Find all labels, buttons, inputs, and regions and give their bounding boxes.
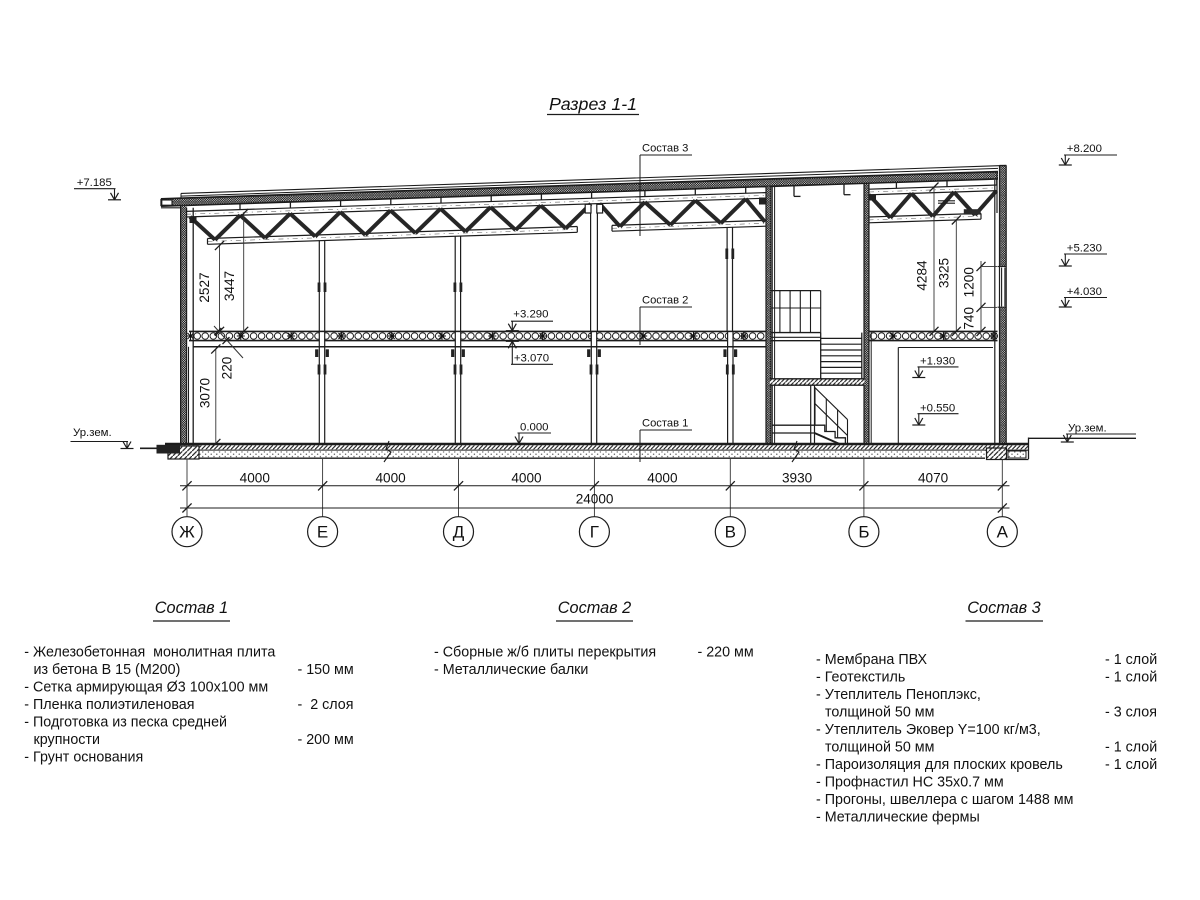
svg-text:+8.200: +8.200: [1067, 143, 1102, 155]
svg-text:- Пароизоляция для плоских кро: - Пароизоляция для плоских кровель: [816, 757, 1063, 773]
svg-text:3930: 3930: [782, 471, 813, 486]
svg-text:Е: Е: [317, 523, 328, 542]
svg-text:- Железобетонная монолитная п: - Железобетонная монолитная плита: [24, 645, 275, 661]
svg-text:из бетона В 15 (М200): из бетона В 15 (М200): [34, 662, 181, 678]
svg-text:Разрез 1-1: Разрез 1-1: [549, 94, 637, 114]
svg-text:- Грунт основания: - Грунт основания: [24, 750, 143, 766]
svg-text:4070: 4070: [918, 471, 949, 486]
svg-text:- Мембрана ПВХ: - Мембрана ПВХ: [816, 652, 928, 668]
svg-text:Д: Д: [453, 523, 465, 542]
svg-text:4000: 4000: [240, 471, 271, 486]
svg-text:А: А: [997, 523, 1009, 542]
svg-text:2527: 2527: [197, 272, 212, 302]
svg-text:- 220 мм: - 220 мм: [698, 645, 754, 661]
svg-text:- Подготовка из песка средней: - Подготовка из песка средней: [24, 715, 227, 731]
svg-text:4000: 4000: [647, 471, 678, 486]
svg-text:- Профнастил НС 35х0.7 мм: - Профнастил НС 35х0.7 мм: [816, 775, 1004, 791]
svg-text:1200: 1200: [961, 267, 976, 298]
svg-text:+3.070: +3.070: [514, 353, 549, 365]
svg-text:- 1 слой: - 1 слой: [1105, 670, 1157, 686]
svg-text:крупности: крупности: [34, 732, 100, 748]
svg-text:4000: 4000: [375, 471, 406, 486]
svg-text:- 200 мм: - 200 мм: [298, 732, 354, 748]
svg-text:Состав 1: Состав 1: [642, 418, 688, 430]
svg-text:- Сетка армирующая Ø3 100х100: - Сетка армирующая Ø3 100х100 мм: [24, 680, 268, 696]
svg-text:- Геотекстиль: - Геотекстиль: [816, 670, 905, 686]
svg-text:Состав 3: Состав 3: [642, 143, 688, 155]
svg-text:+4.030: +4.030: [1067, 286, 1102, 298]
svg-text:Состав 3: Состав 3: [967, 599, 1040, 617]
svg-text:24000: 24000: [576, 492, 614, 507]
svg-text:3325: 3325: [937, 258, 952, 288]
svg-text:+0.550: +0.550: [920, 403, 955, 415]
svg-text:3447: 3447: [222, 271, 237, 301]
svg-text:- Сборные ж/б плиты перекрытия: - Сборные ж/б плиты перекрытия: [434, 645, 656, 661]
svg-text:В: В: [725, 523, 736, 542]
svg-text:Ж: Ж: [179, 523, 195, 542]
svg-text:0.000: 0.000: [520, 422, 549, 434]
svg-text:- 2 слоя: - 2 слоя: [298, 697, 354, 713]
svg-text:Состав 2: Состав 2: [558, 599, 631, 617]
svg-text:толщиной 50 мм: толщиной 50 мм: [825, 740, 934, 756]
svg-text:+3.290: +3.290: [513, 309, 548, 321]
svg-text:- 1 слой: - 1 слой: [1105, 652, 1157, 668]
svg-text:220: 220: [220, 356, 235, 379]
svg-text:Состав 2: Состав 2: [642, 295, 688, 307]
svg-text:+5.230: +5.230: [1067, 243, 1102, 255]
svg-text:Ур.зем.: Ур.зем.: [1068, 423, 1107, 435]
svg-text:- 3 слоя: - 3 слоя: [1105, 705, 1157, 721]
svg-text:- Прогоны, швеллера с шагом 14: - Прогоны, швеллера с шагом 1488 мм: [816, 792, 1073, 808]
svg-text:- Утеплитель Пеноплэкс,: - Утеплитель Пеноплэкс,: [816, 687, 981, 703]
svg-text:- Утеплитель Эковер Y=100 кг/м: - Утеплитель Эковер Y=100 кг/м3,: [816, 722, 1041, 738]
svg-text:- 150 мм: - 150 мм: [298, 662, 354, 678]
svg-text:- 1 слой: - 1 слой: [1105, 740, 1157, 756]
svg-text:Б: Б: [858, 523, 869, 542]
svg-text:Ур.зем.: Ур.зем.: [73, 427, 112, 439]
svg-text:- Пленка полиэтиленовая: - Пленка полиэтиленовая: [24, 697, 194, 713]
svg-text:4000: 4000: [511, 471, 542, 486]
svg-text:3070: 3070: [198, 377, 213, 408]
svg-text:толщиной 50 мм: толщиной 50 мм: [825, 705, 934, 721]
svg-text:- Металлические фермы: - Металлические фермы: [816, 810, 980, 826]
svg-text:4284: 4284: [914, 260, 929, 291]
svg-text:740: 740: [961, 307, 976, 330]
svg-text:+7.185: +7.185: [77, 177, 112, 189]
svg-text:Г: Г: [590, 523, 599, 542]
svg-text:+1.930: +1.930: [920, 356, 955, 368]
svg-text:- 1 слой: - 1 слой: [1105, 757, 1157, 773]
svg-text:Состав 1: Состав 1: [155, 599, 228, 617]
svg-text:- Металлические балки: - Металлические балки: [434, 662, 588, 678]
